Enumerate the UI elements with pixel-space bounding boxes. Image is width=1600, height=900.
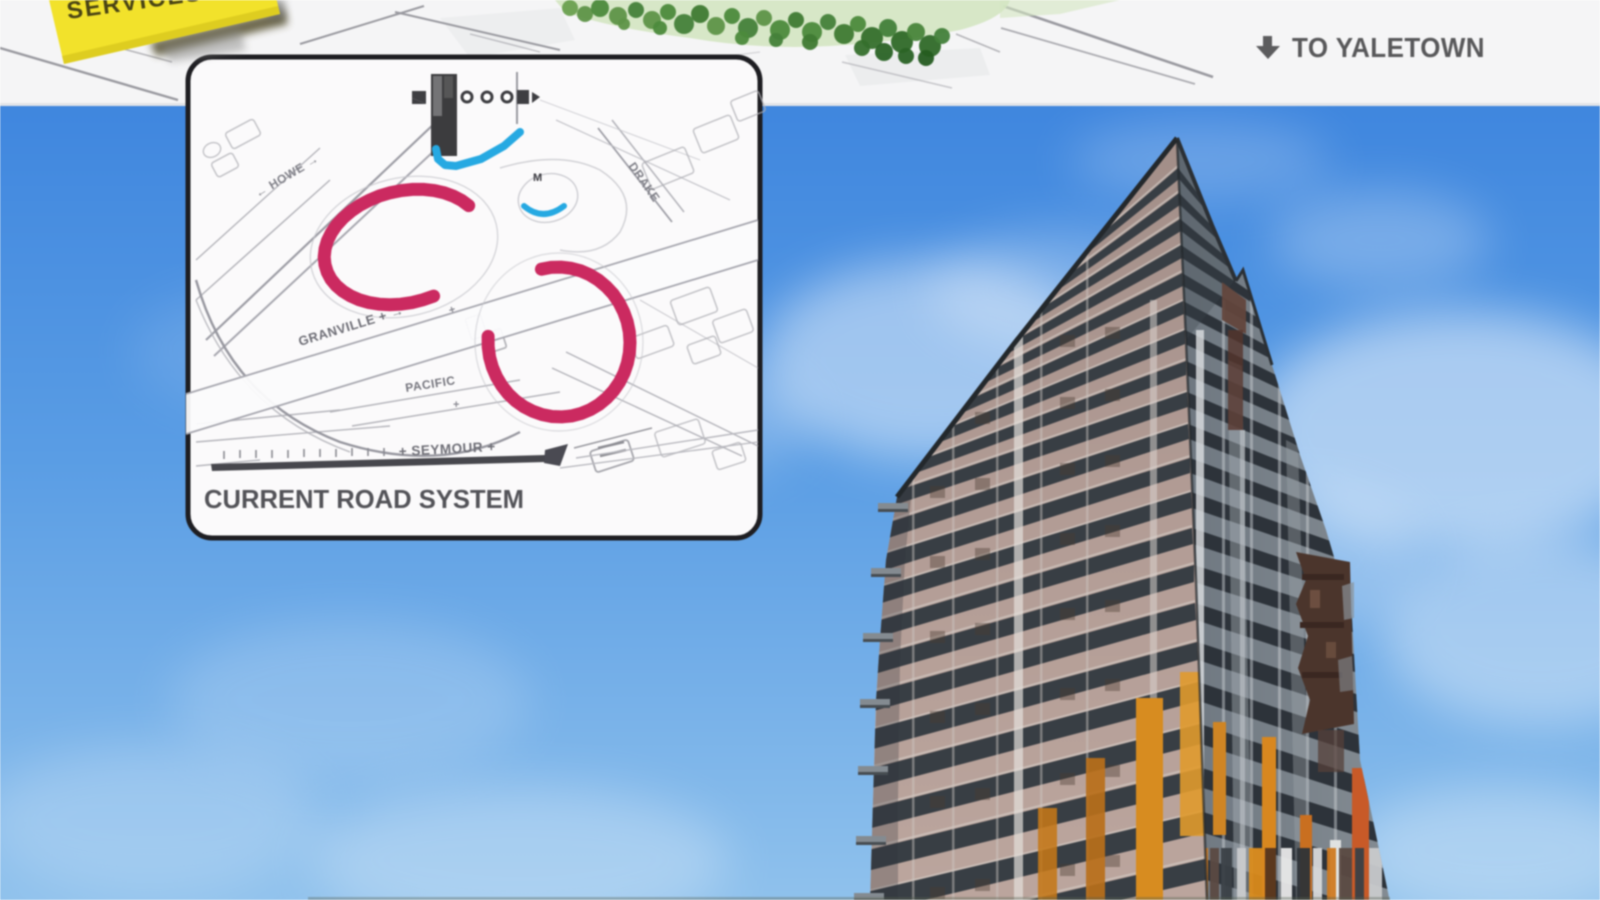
- svg-text:+: +: [453, 399, 460, 411]
- svg-text:CURRENT ROAD SYSTEM: CURRENT ROAD SYSTEM: [204, 484, 524, 514]
- svg-text:TO YALETOWN: TO YALETOWN: [1292, 32, 1485, 63]
- svg-text:M: M: [533, 172, 542, 184]
